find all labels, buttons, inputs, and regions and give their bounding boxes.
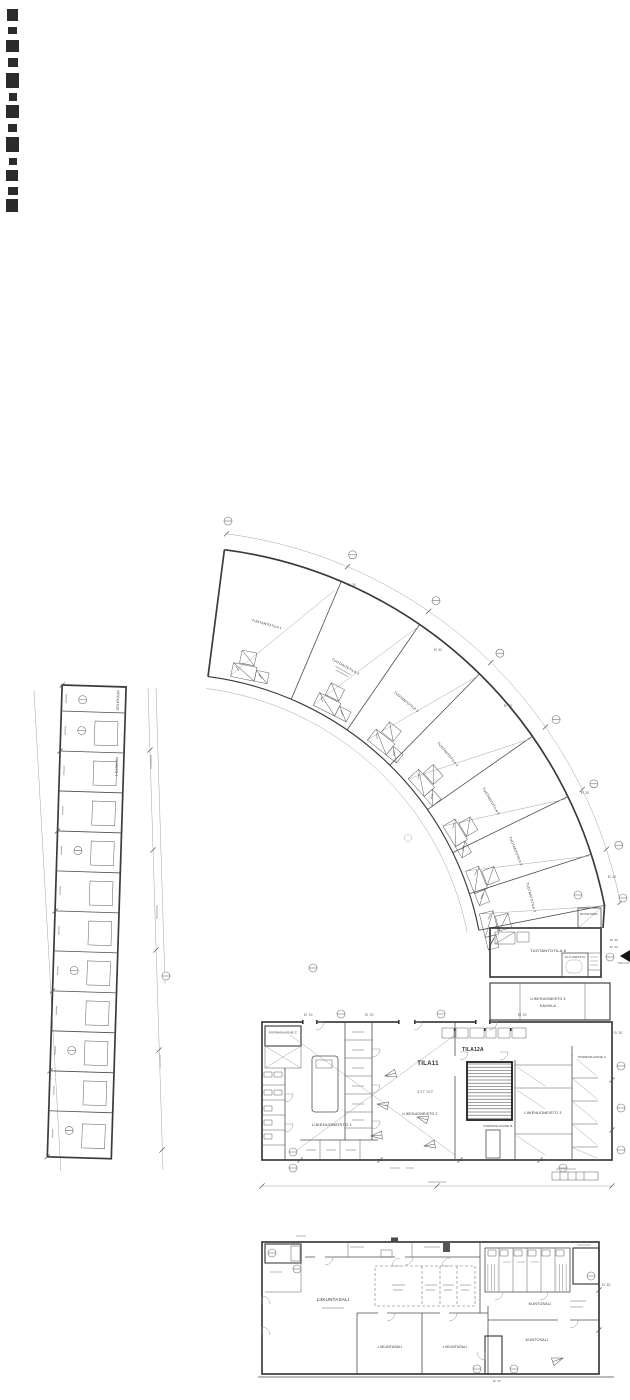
- fire-rating-tag: EI 30: [614, 1031, 622, 1035]
- floor-plan-drawing: JÄTEKATOS VARASTO 1: [0, 0, 630, 1400]
- fire-rating-tag: EI 30: [304, 1013, 313, 1017]
- grid-marker: [405, 835, 412, 842]
- curved-production-building: TUOTANTOTILA 1 TUOTANTOTILA 2 TUOTANTOTI…: [206, 517, 630, 1020]
- main-building: EI 30 EI 30 EI 30 PORRASHUONE C LIIKEHUO…: [259, 1010, 625, 1189]
- label-muuntamo: MUUNTAMO: [580, 912, 598, 916]
- stair-ramp-core: [467, 1062, 512, 1120]
- grid-marker: [309, 964, 317, 972]
- label-kahvila: KAHVILA: [540, 1004, 557, 1008]
- fire-rating-tag: EI 30: [610, 938, 618, 942]
- storage-door-recesses: [82, 721, 118, 1149]
- label-tuotantotila-7: TUOTANTOTILA 7: [525, 882, 537, 913]
- sports-building: LIIKUNTASALI LIIKUNTASALI LIIKUNTASALI E…: [258, 1236, 614, 1383]
- fire-rating-tag: EI 30: [504, 704, 512, 708]
- wc-fixtures: [264, 1072, 282, 1139]
- fire-rating-tag: EI 30: [608, 875, 616, 879]
- label-porrashuone-a: PORRASHUONE A: [578, 1055, 606, 1059]
- fire-rating-tag: EI 30: [602, 1283, 610, 1287]
- site-boundary-line: [19, 690, 76, 1171]
- label-jatekatos: JÄTEKATOS: [115, 690, 120, 711]
- label-tuotantotila-4: TUOTANTOTILA 4: [436, 741, 459, 767]
- label-tuotantotila-1: TUOTANTOTILA 1: [251, 618, 282, 630]
- label-tila11: TILA11: [417, 1060, 439, 1067]
- storage-strip-building: JÄTEKATOS VARASTO 1: [19, 682, 126, 1173]
- grid-marker: [79, 696, 87, 704]
- label-liikehuoneisto-4: LIIKEHUONEISTO 4: [530, 997, 565, 1001]
- label-porrashuone-c: PORRASHUONE C: [269, 1031, 297, 1035]
- fire-rating-tag: EI 30: [518, 1013, 527, 1017]
- scale-bar: [552, 1172, 598, 1180]
- label-tuotantotila-5: TUOTANTOTILA 5: [481, 787, 500, 816]
- scan-edge-marks: [6, 9, 19, 212]
- label-liikuntasali-main: LIIKUNTASALI: [317, 1297, 350, 1302]
- label-oljyvarasto: ÖLJYVARASTO: [565, 955, 586, 959]
- grid-marker: [78, 727, 86, 735]
- label-liikuntasali-2: LIIKUNTASALI: [378, 1345, 403, 1349]
- fire-rating-tag: EI 60: [610, 945, 618, 949]
- end-wall: [208, 550, 224, 677]
- label-tuotantotila-6: TUOTANTOTILA 6: [508, 836, 523, 866]
- sports-building-outline: [262, 1242, 599, 1374]
- court-markings: [375, 1266, 475, 1306]
- label-tila12a: TILA12A: [462, 1047, 484, 1053]
- inner-wall: [208, 677, 479, 931]
- fire-rating-tag: EI 30: [581, 791, 589, 795]
- label-kuntosali-1: KUNTOSALI: [529, 1302, 552, 1306]
- stair-b: [486, 1130, 500, 1158]
- chimney-mark: [391, 1238, 398, 1243]
- fire-rating-tag: EI 30: [365, 1013, 374, 1017]
- main-building-outline: [262, 1022, 612, 1160]
- dimension-arc: [227, 534, 621, 903]
- label-tuotantotila-8: TUOTANTOTILA 8: [530, 948, 567, 953]
- grid-marker: [68, 1046, 76, 1054]
- label-liikuntasali-3: LIIKUNTASALI: [443, 1345, 468, 1349]
- label-varasto-1: VARASTO 1: [114, 757, 119, 777]
- outer-wall: [224, 550, 604, 928]
- fire-rating-tag: EI 30: [434, 648, 442, 652]
- stair-topright: [573, 1248, 599, 1284]
- fire-rating-tag: EI 30: [348, 583, 356, 587]
- label-tuotantotila-3: TUOTANTOTILA 3: [393, 690, 419, 713]
- fire-rating-tag: EI 30: [493, 1379, 501, 1383]
- grid-marker: [65, 1126, 73, 1134]
- tech-room: [588, 953, 601, 970]
- label-liikehuoneisto-2: LIIKEHUONEISTO 2: [402, 1112, 437, 1116]
- label-fire-access: PALOK.: [618, 961, 630, 965]
- label-kuntosali-2: KUNTOSALI: [526, 1338, 549, 1342]
- label-porrashuone-b: PORRASHUONE B: [484, 1124, 513, 1128]
- grid-marker: [162, 972, 170, 980]
- cafe-wing-outline: [490, 983, 610, 1020]
- leader-lines: [230, 590, 603, 914]
- label-liikehuoneisto-3: LIIKEHUONEISTO 3: [524, 1111, 561, 1115]
- duct-mark: [443, 1243, 450, 1252]
- stair-mid: [485, 1336, 502, 1374]
- label-liikehuoneisto-1: LIIKEHUONEISTO 1: [312, 1122, 353, 1127]
- label-tila11-area: 347 m2: [417, 1089, 434, 1094]
- storage-strip-outline: [47, 685, 126, 1159]
- grid-marker: [74, 846, 82, 854]
- grid-marker: [70, 966, 78, 974]
